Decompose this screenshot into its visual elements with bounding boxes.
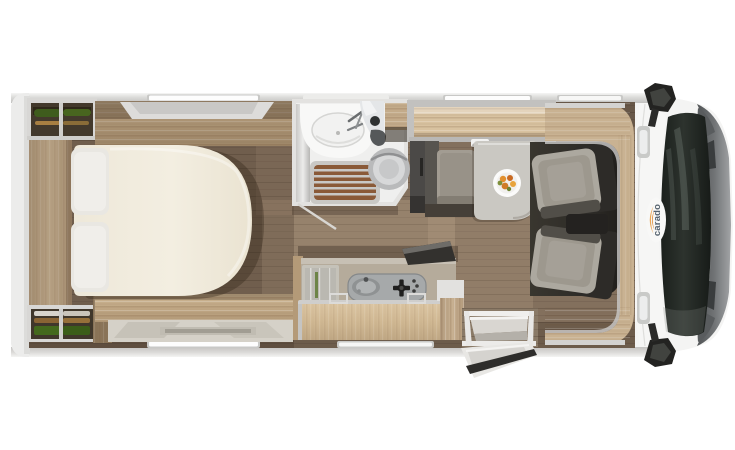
svg-text:carado: carado bbox=[652, 204, 663, 236]
